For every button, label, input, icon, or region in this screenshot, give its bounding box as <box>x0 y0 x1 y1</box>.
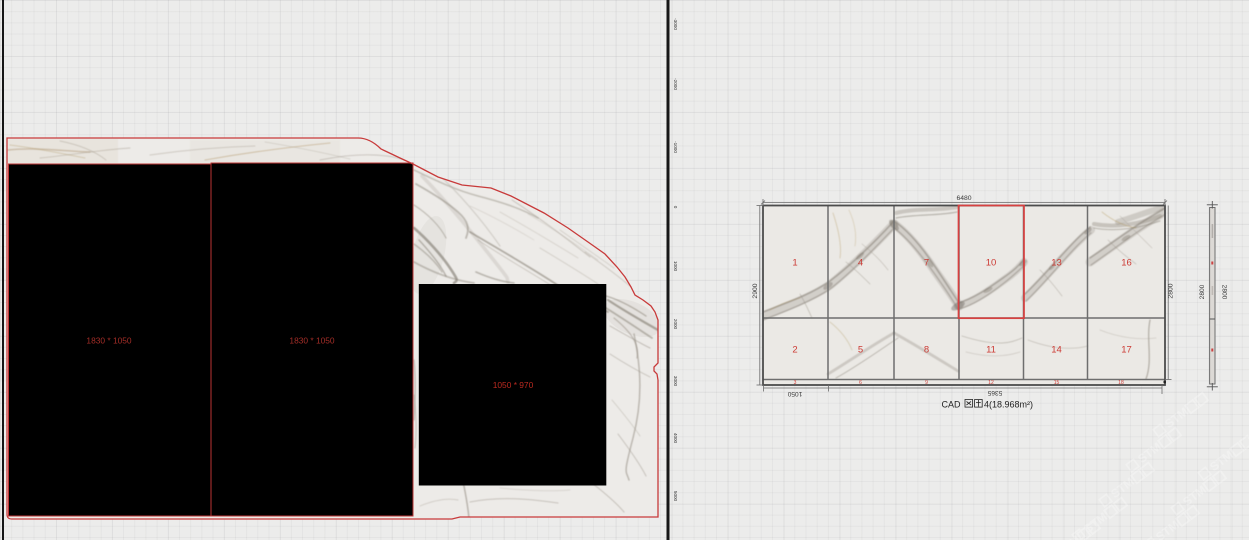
svg-text:14: 14 <box>1051 345 1062 356</box>
svg-text:4000: 4000 <box>673 433 678 444</box>
svg-text:-3000: -3000 <box>673 18 678 30</box>
svg-text:1: 1 <box>792 258 797 269</box>
svg-text:5: 5 <box>858 345 863 356</box>
svg-text:0: 0 <box>673 206 678 209</box>
svg-text:9: 9 <box>925 380 928 386</box>
svg-text:6480: 6480 <box>956 195 971 202</box>
svg-text:2800: 2800 <box>1168 283 1175 298</box>
svg-text:15: 15 <box>1054 380 1060 386</box>
svg-text:1050 * 970: 1050 * 970 <box>493 380 534 390</box>
svg-text:5365: 5365 <box>987 389 1002 396</box>
svg-text:12: 12 <box>988 380 994 386</box>
svg-text:13: 13 <box>1051 258 1062 269</box>
svg-text:2900: 2900 <box>752 283 759 298</box>
svg-text:1830 * 1050: 1830 * 1050 <box>86 335 132 345</box>
svg-text:7: 7 <box>924 258 929 269</box>
svg-text:1050: 1050 <box>787 390 802 397</box>
svg-text:3000: 3000 <box>673 376 678 387</box>
svg-text:10: 10 <box>986 258 997 269</box>
svg-text:2800: 2800 <box>1199 284 1206 299</box>
svg-text:18: 18 <box>1118 380 1124 386</box>
svg-text:11: 11 <box>986 345 996 356</box>
svg-text:-2000: -2000 <box>673 78 678 90</box>
svg-text:-1000: -1000 <box>673 141 678 153</box>
svg-text:3: 3 <box>794 380 797 386</box>
svg-text:CAD: CAD <box>941 400 961 410</box>
svg-text:4: 4 <box>858 258 863 269</box>
svg-text:5000: 5000 <box>673 491 678 502</box>
svg-text:2000: 2000 <box>673 319 678 330</box>
svg-text:1830 * 1050: 1830 * 1050 <box>289 335 335 345</box>
svg-text:4(18.968m²): 4(18.968m²) <box>984 400 1033 410</box>
svg-text:2: 2 <box>792 345 797 356</box>
svg-text:16: 16 <box>1121 258 1132 269</box>
svg-text:2800: 2800 <box>1221 285 1228 300</box>
svg-text:17: 17 <box>1121 345 1132 356</box>
svg-text:6: 6 <box>859 380 862 386</box>
svg-text:1000: 1000 <box>673 261 678 272</box>
svg-text:8: 8 <box>924 345 929 356</box>
